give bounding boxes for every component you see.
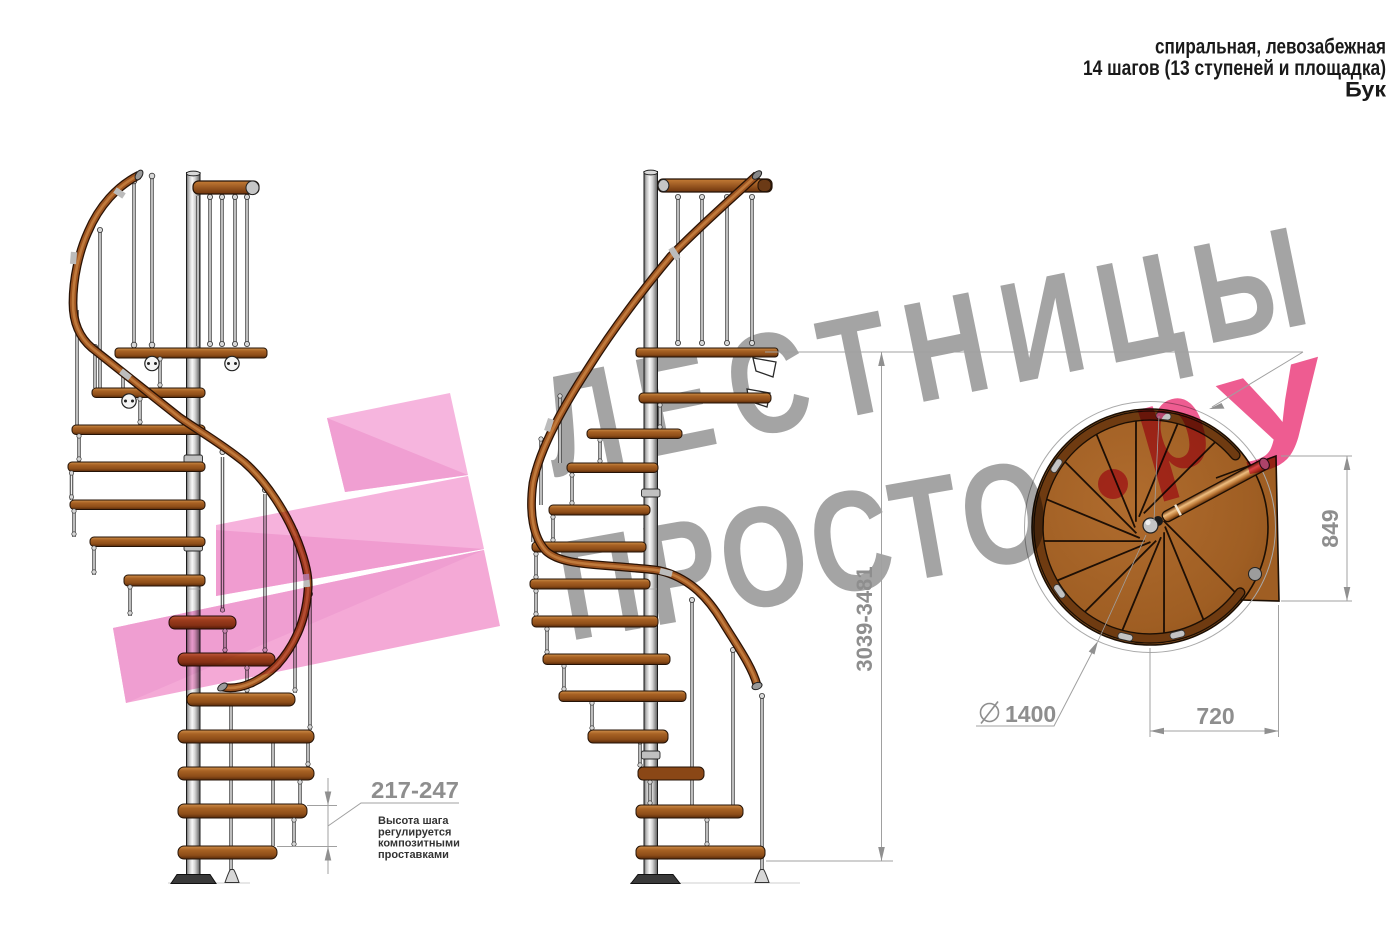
svg-text:217-247: 217-247 — [371, 777, 459, 803]
svg-text:3039-3481: 3039-3481 — [852, 566, 877, 671]
svg-text:Высота шага: Высота шага — [378, 815, 449, 827]
svg-text:композитными: композитными — [378, 838, 460, 850]
svg-text:регулируется: регулируется — [378, 826, 451, 838]
svg-text:849: 849 — [1317, 509, 1343, 547]
svg-text:1400: 1400 — [1005, 701, 1056, 727]
svg-text:спиральная, левозабежная: спиральная, левозабежная — [1155, 35, 1386, 59]
svg-text:14 шагов (13 ступеней и площад: 14 шагов (13 ступеней и площадка) — [1083, 56, 1386, 80]
svg-text:Бук: Бук — [1345, 78, 1386, 102]
svg-text:720: 720 — [1196, 703, 1234, 729]
svg-text:проставками: проставками — [378, 849, 449, 861]
